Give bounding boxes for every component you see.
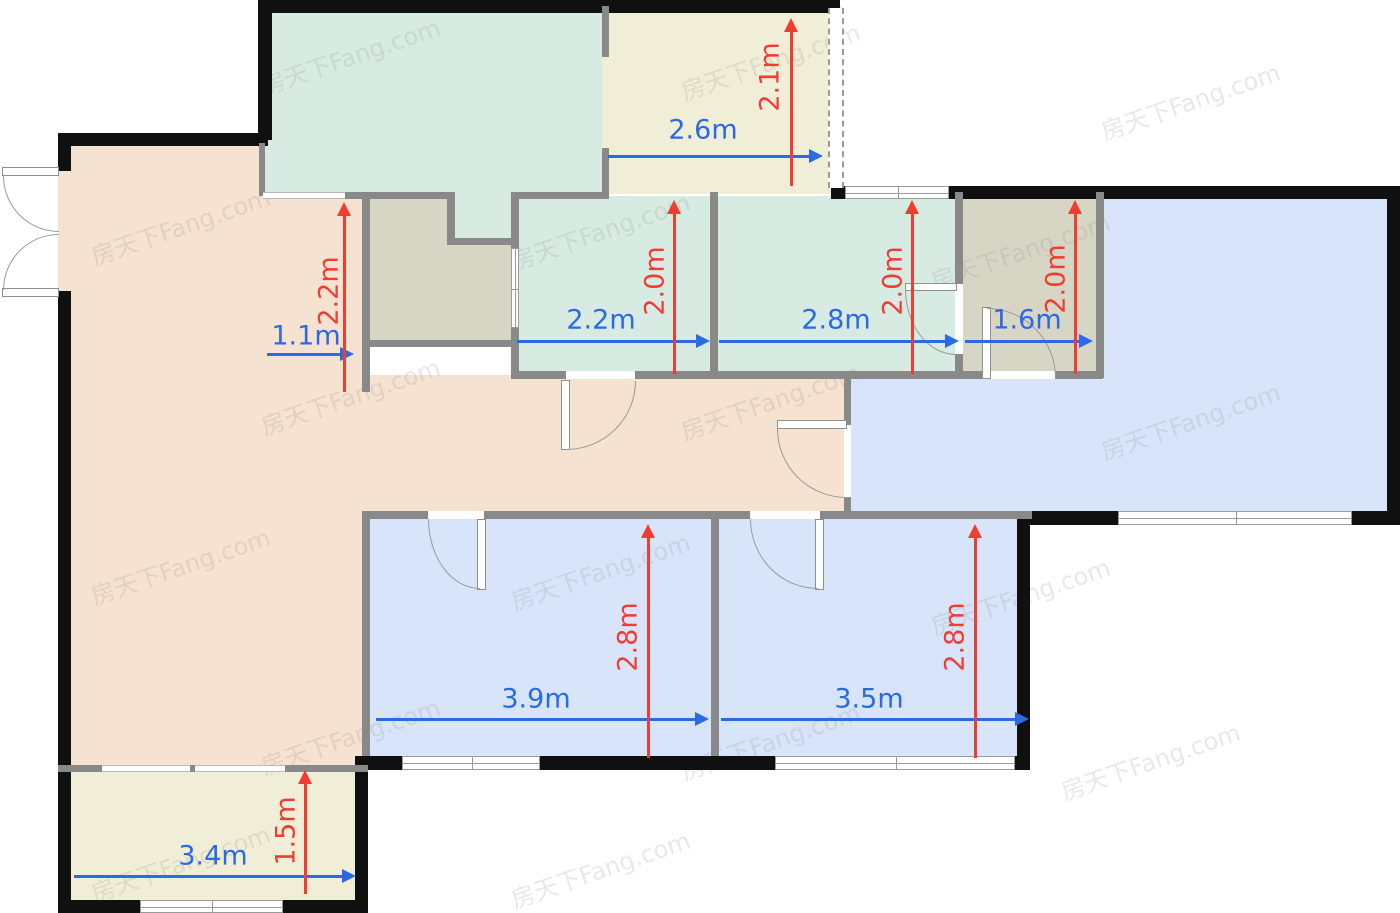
window-dining-south — [1118, 511, 1352, 525]
slider-balcony-2 — [195, 765, 285, 772]
interior-wall — [362, 519, 370, 756]
window-glazing-line — [776, 763, 1014, 764]
interior-wall — [517, 192, 609, 199]
door-leaf — [777, 420, 847, 429]
dimension-arrowhead — [1015, 712, 1029, 726]
window-mullion — [512, 289, 518, 290]
interior-wall — [820, 511, 1032, 519]
dimension-arrowhead — [298, 770, 312, 784]
dimension-arrowhead — [945, 334, 959, 348]
window-glazing-line — [846, 193, 948, 194]
interior-wall — [484, 511, 750, 519]
interior-wall — [447, 238, 517, 245]
window-mullion — [212, 901, 213, 912]
interior-wall — [1055, 371, 1103, 379]
interior-wall — [362, 511, 428, 519]
exterior-wall — [1387, 186, 1400, 525]
interior-wall — [955, 192, 963, 284]
window-glazing-line — [403, 763, 539, 764]
dimension-line — [911, 212, 914, 374]
dimension-label: 2.8m — [801, 305, 870, 336]
window-mullion — [472, 757, 473, 769]
exterior-wall — [1017, 518, 1030, 770]
interior-wall — [844, 378, 851, 425]
dimension-label: 2.0m — [640, 246, 671, 315]
gap-bedroom-west-door — [428, 511, 484, 519]
north-balcony-floor — [602, 6, 842, 194]
dimension-arrowhead — [696, 334, 710, 348]
dimension-label: 2.0m — [878, 246, 909, 315]
interior-wall — [368, 340, 516, 347]
dimension-label: 1.5m — [271, 796, 302, 865]
dimension-arrowhead — [337, 202, 351, 216]
exterior-wall — [58, 133, 268, 146]
door-swing-arc — [3, 176, 59, 232]
kitchen-floor — [263, 6, 605, 196]
dimension-arrowhead — [1068, 200, 1082, 214]
watermark-text: 房天下Fang.com — [1056, 713, 1245, 807]
window-mullion — [896, 757, 897, 769]
dimension-label: 3.5m — [834, 684, 903, 715]
exterior-wall — [948, 186, 1400, 199]
interior-wall — [1096, 192, 1104, 378]
dimension-label: 2.8m — [940, 602, 971, 671]
interior-wall — [362, 192, 370, 392]
dining-room-floor — [1100, 190, 1395, 522]
watermark-text: 房天下Fang.com — [506, 821, 695, 913]
dimension-line — [647, 536, 650, 758]
dimension-arrowhead — [641, 524, 655, 538]
dimension-label: 2.0m — [1041, 244, 1072, 313]
dimension-arrowhead — [809, 149, 823, 163]
dimension-arrowhead — [905, 200, 919, 214]
slider-balcony-1 — [102, 765, 190, 772]
dimension-line — [790, 30, 793, 186]
window-north — [845, 186, 949, 199]
interior-wall — [602, 6, 609, 57]
exterior-wall — [58, 291, 71, 772]
floor-plan: 房天下Fang.com房天下Fang.com房天下Fang.com房天下Fang… — [0, 0, 1400, 913]
living-room-floor — [58, 133, 368, 772]
pass-kitchen-living — [263, 192, 345, 199]
window-south-balcony — [140, 900, 283, 913]
dimension-label: 3.9m — [501, 684, 570, 715]
dimension-arrowhead — [1079, 334, 1093, 348]
exterior-wall — [258, 0, 272, 140]
dimension-line — [673, 212, 676, 374]
window-mullion — [1236, 512, 1237, 524]
dimension-label: 2.8m — [613, 602, 644, 671]
window-bedroom-west — [402, 756, 540, 770]
dimension-arrowhead — [667, 200, 681, 214]
dining-room-floor-west — [848, 378, 1108, 518]
window-bedroom-east — [775, 756, 1015, 770]
exterior-wall — [58, 133, 71, 171]
teal-room-west-floor — [513, 196, 715, 378]
window-mullion — [898, 187, 899, 198]
interior-wall — [447, 192, 455, 244]
interior-wall — [58, 765, 102, 772]
dimension-line — [267, 353, 342, 356]
glass-wall-north-balcony — [828, 8, 844, 188]
kitchen-duct-floor — [450, 192, 515, 242]
watermark-text: 房天下Fang.com — [1096, 53, 1285, 147]
dimension-line — [965, 340, 1081, 343]
window-glazing-line — [515, 249, 516, 327]
dimension-label: 2.1m — [755, 42, 786, 111]
door-swing-arc — [3, 234, 59, 290]
interior-wall — [711, 519, 719, 756]
dimension-line — [1074, 212, 1077, 374]
interior-wall — [511, 192, 519, 248]
interior-wall — [710, 192, 718, 378]
window-teal-west-wall — [511, 248, 519, 328]
exterior-wall — [58, 770, 71, 913]
dimension-arrowhead — [695, 712, 709, 726]
dimension-arrowhead — [968, 524, 982, 538]
dimension-line — [608, 155, 811, 158]
gap-bedroom-east-door — [750, 511, 820, 519]
dimension-label: 2.2m — [566, 305, 635, 336]
interior-wall — [635, 371, 963, 379]
exterior-wall — [355, 756, 368, 913]
door-leaf — [2, 167, 59, 176]
dimension-label: 2.2m — [314, 256, 345, 325]
dimension-arrowhead — [342, 869, 356, 883]
bedroom-west-floor — [365, 515, 715, 765]
window-glazing-line — [1119, 518, 1351, 519]
interior-wall — [259, 143, 265, 196]
dimension-label: 3.4m — [178, 841, 247, 872]
exterior-wall — [258, 0, 840, 13]
dimension-line — [974, 536, 977, 758]
dimension-label: 2.6m — [668, 115, 737, 146]
dimension-line — [304, 782, 307, 894]
dimension-line — [517, 340, 698, 343]
dimension-arrowhead — [784, 18, 798, 32]
gap-tealwest-door — [566, 371, 635, 379]
interior-wall — [511, 371, 566, 379]
